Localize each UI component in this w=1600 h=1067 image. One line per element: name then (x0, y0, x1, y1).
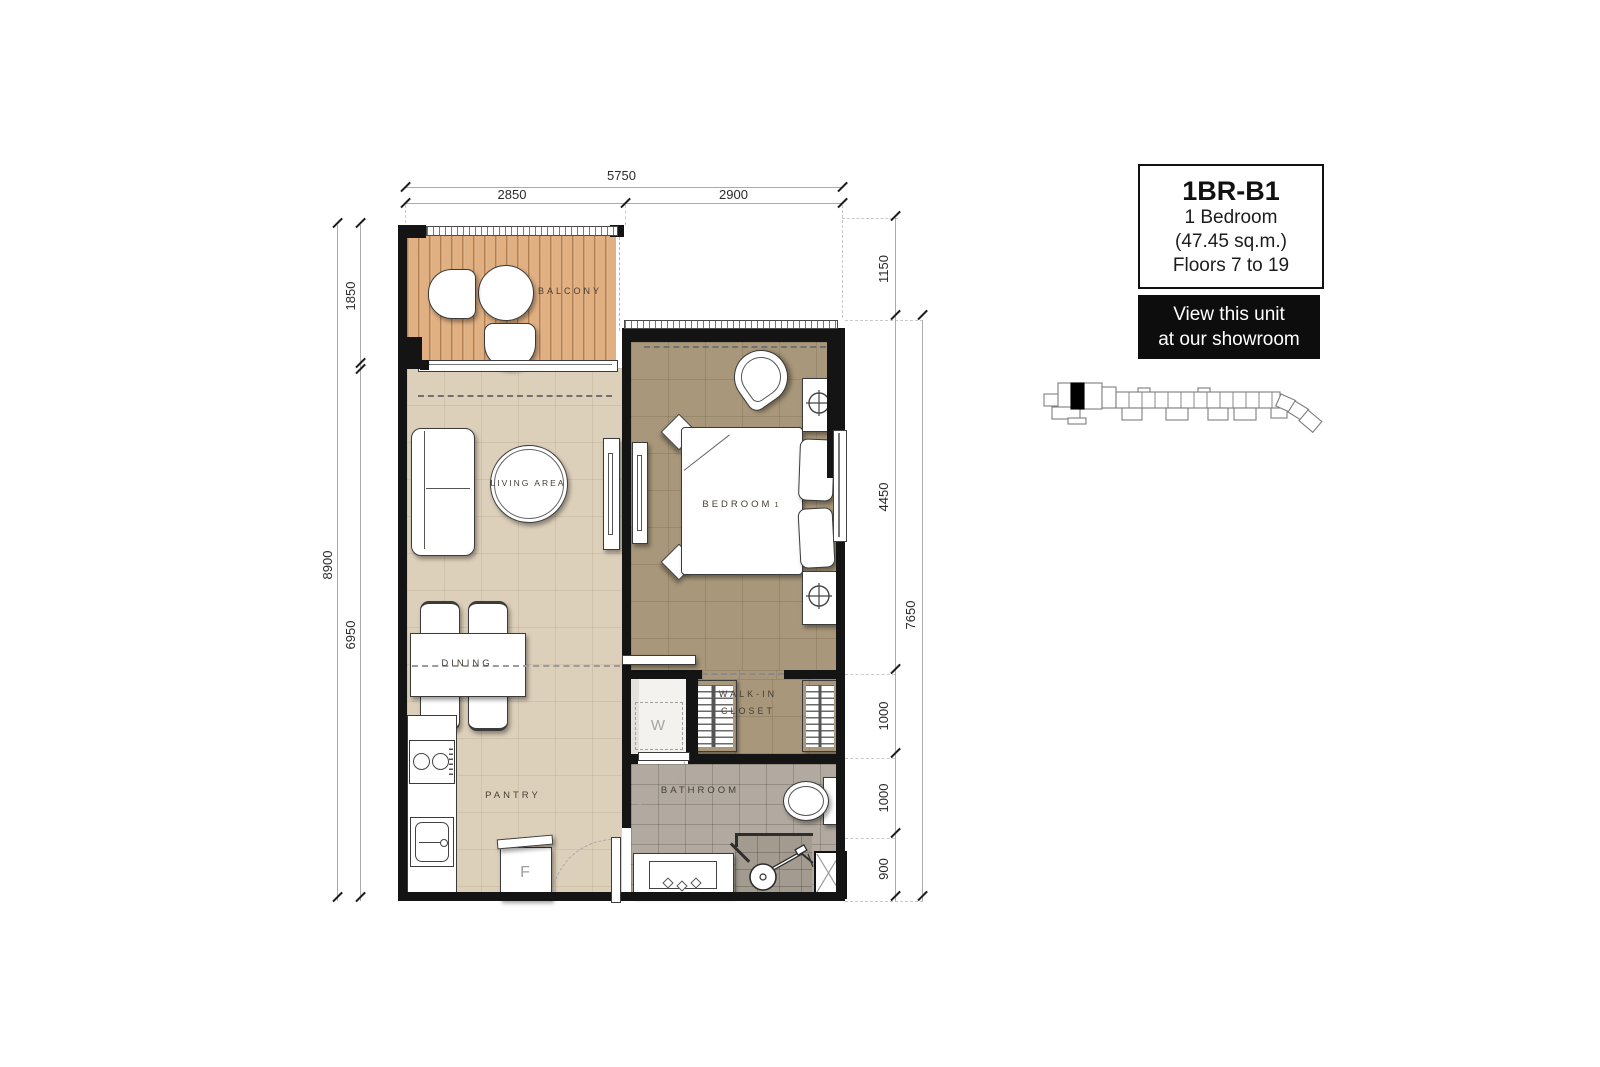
extension-line (842, 205, 843, 318)
washer-label: W (635, 717, 681, 733)
shower-head-icon (743, 841, 815, 895)
dining-label: DINING (412, 657, 522, 669)
dimension-tick (917, 310, 927, 320)
cta-line-1: View this unit (1173, 302, 1285, 327)
view-showroom-button[interactable]: View this unit at our showroom (1138, 295, 1320, 359)
curtain-line (418, 395, 612, 397)
wall (398, 225, 426, 238)
dim-left-total: 8900 (320, 530, 334, 600)
wall (784, 670, 845, 679)
sliding-door-frame (418, 360, 618, 372)
bathroom-label: BATHROOM (640, 784, 760, 796)
kitchen-sink (410, 817, 454, 867)
dim-left-top: 1850 (343, 261, 357, 331)
bed-pillow (797, 507, 835, 569)
dim-top-left: 2850 (405, 187, 619, 201)
floor-plan-page: 1BR-B1 1 Bedroom (47.45 sq.m.) Floors 7 … (0, 0, 1600, 1067)
stove (409, 740, 455, 784)
dim-right-seg: 900 (876, 834, 890, 904)
wall (622, 670, 702, 679)
pantry-label: PANTRY (453, 789, 573, 801)
bedroom-window (833, 430, 847, 542)
extension-line (845, 674, 895, 675)
dim-right-seg: 1000 (876, 763, 890, 833)
wall (398, 892, 845, 901)
wall (622, 328, 845, 342)
wall (420, 360, 429, 370)
extension-line (625, 205, 626, 225)
wardrobe (802, 680, 838, 752)
closet-sliding-line (702, 673, 784, 675)
unit-floors: Floors 7 to 19 (1173, 254, 1289, 278)
tv-console (603, 438, 620, 550)
wall (688, 754, 845, 764)
sofa (411, 428, 475, 556)
wall (398, 337, 422, 369)
building-site-plan-icon (1038, 370, 1338, 438)
extension-line (405, 205, 406, 223)
walkin-closet-label: WALK-INCLOSET (698, 684, 798, 722)
sliding-door-track (422, 364, 612, 365)
balcony-chair (428, 269, 476, 319)
unit-area: (47.45 sq.m.) (1175, 230, 1287, 254)
toilet-bowl (783, 781, 829, 821)
dim-top-total: 5750 (398, 168, 845, 183)
dimension-line (337, 225, 338, 901)
bedroom-window-glass (838, 433, 840, 537)
living-area-label: LIVING AREA (488, 477, 568, 489)
bedroom-console (632, 442, 648, 544)
shower-glass (735, 833, 813, 836)
unit-code: 1BR-B1 (1182, 176, 1280, 206)
extension-line (845, 320, 923, 321)
dim-right-seg: 4450 (876, 462, 890, 532)
dim-left-bottom: 6950 (343, 600, 357, 670)
dim-top-right: 2900 (625, 187, 842, 201)
balcony-edge-line (619, 237, 620, 331)
dim-right-seg: 1000 (876, 681, 890, 751)
balcony-label: BALCONY (510, 285, 630, 297)
bedroom-label: BEDROOM1 (687, 498, 795, 510)
dim-right-seg: 1150 (876, 234, 890, 304)
entry-door-leaf (611, 837, 621, 903)
vanity (633, 853, 734, 896)
bedroom-window-rail (624, 320, 838, 329)
unit-info-card: 1BR-B1 1 Bedroom (47.45 sq.m.) Floors 7 … (1138, 164, 1324, 289)
wall (622, 754, 638, 764)
balcony-railing (426, 226, 618, 236)
wall (686, 679, 698, 758)
dimension-line (895, 218, 896, 901)
cta-line-2: at our showroom (1158, 327, 1300, 352)
extension-line (845, 758, 895, 759)
dimension-line (922, 320, 923, 901)
unit-type: 1 Bedroom (1185, 206, 1278, 230)
bathroom-door-leaf (638, 752, 690, 761)
ceiling-lamp-icon (805, 582, 833, 610)
dimension-line (360, 225, 361, 901)
fridge-label: F (500, 865, 550, 881)
dim-right-total: 7650 (903, 580, 917, 650)
sliding-door-panel (622, 655, 696, 665)
floor-plan: BALCONY LIVING AREA DINING (398, 225, 845, 901)
wall (398, 225, 407, 901)
curtain-line (644, 346, 826, 348)
